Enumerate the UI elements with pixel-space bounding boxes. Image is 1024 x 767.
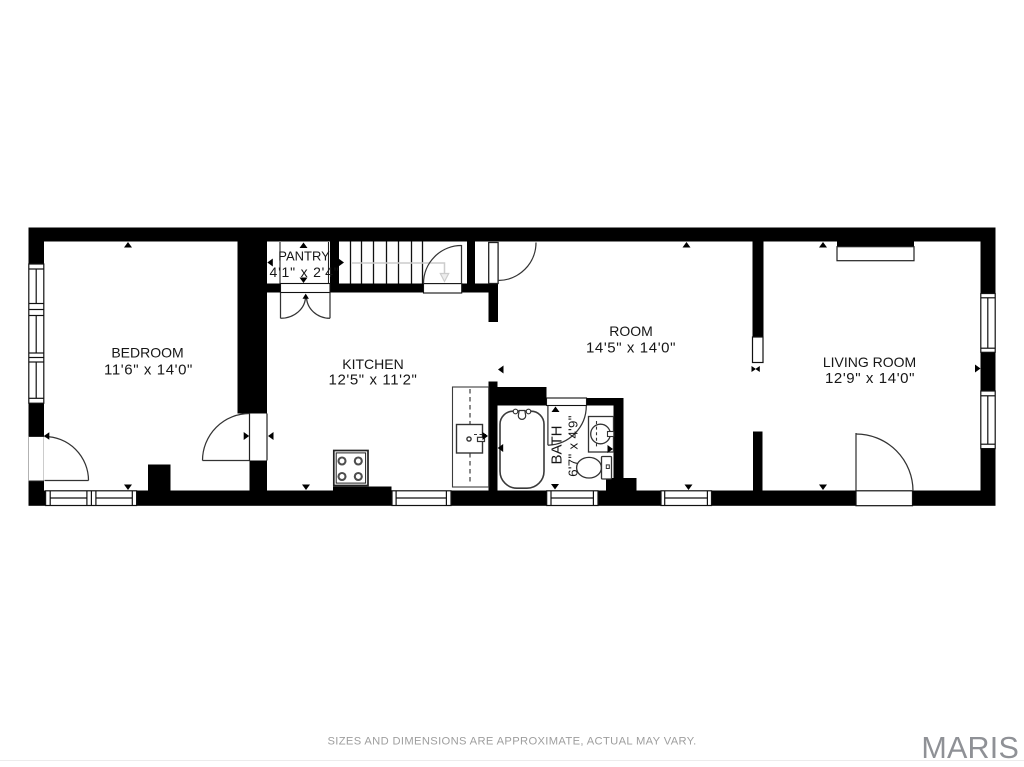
svg-text:BATH: BATH	[548, 426, 565, 465]
svg-text:BEDROOM: BEDROOM	[111, 345, 183, 361]
svg-text:12'5" x 11'2": 12'5" x 11'2"	[329, 371, 418, 388]
svg-text:MARIS: MARIS	[921, 731, 1019, 765]
svg-text:ROOM: ROOM	[609, 323, 653, 339]
svg-text:12'9" x 14'0": 12'9" x 14'0"	[825, 370, 915, 387]
svg-text:6'7" x 4'9": 6'7" x 4'9"	[565, 415, 580, 477]
svg-text:KITCHEN: KITCHEN	[342, 356, 403, 372]
svg-text:11'6" x 14'0": 11'6" x 14'0"	[104, 362, 193, 379]
svg-text:14'5" x 14'0": 14'5" x 14'0"	[586, 339, 676, 356]
svg-text:LIVING ROOM: LIVING ROOM	[823, 354, 916, 370]
svg-text:PANTRY: PANTRY	[278, 248, 330, 263]
svg-text:SIZES AND DIMENSIONS ARE APPRO: SIZES AND DIMENSIONS ARE APPROXIMATE, AC…	[327, 736, 696, 748]
